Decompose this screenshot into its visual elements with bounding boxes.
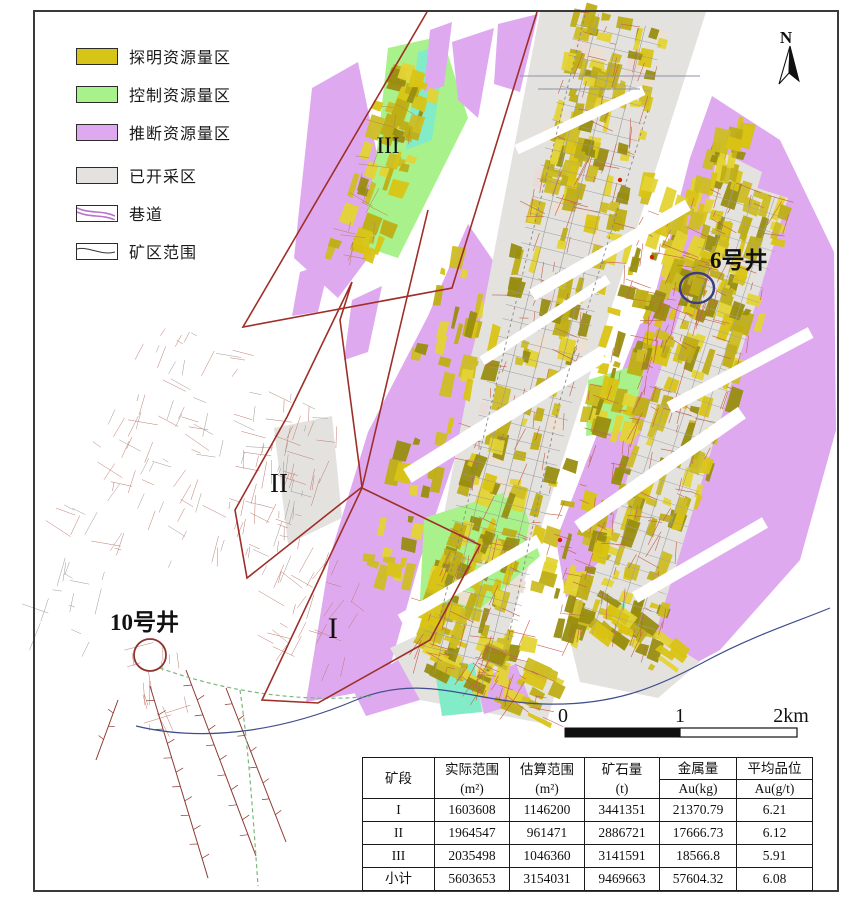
north-arrow-label: N	[780, 28, 793, 47]
cell-metal-amount: 17666.73	[660, 822, 737, 845]
header-line2: (m²)	[435, 780, 509, 798]
legend-label-boundary: 矿区范围	[129, 239, 197, 263]
cell-estimated-area: 1046360	[510, 845, 585, 868]
table-row: III 2035498 1046360 3141591 18566.8 5.91	[363, 845, 813, 868]
table-row-subtotal: 小计 5603653 3154031 9469663 57604.32 6.08	[363, 868, 813, 891]
col-header-ore-amount: 矿石量 (t)	[585, 758, 660, 799]
scale-bar: 0 1 2km	[558, 705, 809, 737]
north-arrow: N	[779, 28, 799, 84]
col-header-segment: 矿段	[363, 758, 435, 799]
cell-ore-amount: 3441351	[585, 799, 660, 822]
zone-label-i: I	[328, 612, 338, 645]
well-6-label: 6号井	[710, 248, 768, 273]
cell-actual-area: 2035498	[435, 845, 510, 868]
inferred-area-swatch	[76, 124, 118, 141]
header-line1: 平均品位	[737, 758, 812, 779]
scale-tick-1: 1	[675, 705, 685, 727]
legend-item-boundary: 矿区范围	[76, 242, 231, 260]
legend-label-mined: 已开采区	[129, 163, 197, 187]
cell-metal-amount: 18566.8	[660, 845, 737, 868]
legend-item-tunnel: 巷道	[76, 204, 231, 222]
header-line1: 金属量	[660, 758, 736, 779]
cell-actual-area: 1603608	[435, 799, 510, 822]
header-line1: 矿石量	[585, 759, 659, 780]
zone-label-ii: II	[270, 468, 288, 498]
header-line2: Au(kg)	[660, 779, 736, 798]
controlled-area-swatch	[76, 86, 118, 103]
resource-table-wrap: 矿段 实际范围 (m²) 估算范围 (m²) 矿石量 (t) 金属量 Au(kg…	[362, 757, 813, 891]
col-header-metal-amount: 金属量 Au(kg)	[660, 758, 737, 799]
table-header-row: 矿段 实际范围 (m²) 估算范围 (m²) 矿石量 (t) 金属量 Au(kg…	[363, 758, 813, 799]
ventilation-tunnel-line	[240, 690, 258, 886]
cell-metal-amount: 57604.32	[660, 868, 737, 891]
header-line2: (m²)	[510, 780, 584, 798]
mined-area-swatch	[76, 167, 118, 184]
legend-label-controlled: 控制资源量区	[129, 82, 231, 106]
tunnel-lines-icon	[77, 206, 115, 220]
header-line1: 估算范围	[510, 759, 584, 780]
resource-table: 矿段 实际范围 (m²) 估算范围 (m²) 矿石量 (t) 金属量 Au(kg…	[362, 757, 813, 891]
col-header-estimated-area: 估算范围 (m²)	[510, 758, 585, 799]
cell-actual-area: 5603653	[435, 868, 510, 891]
cell-average-grade: 6.21	[737, 799, 813, 822]
tunnel-swatch	[76, 205, 118, 222]
cell-estimated-area: 1146200	[510, 799, 585, 822]
cell-estimated-area: 3154031	[510, 868, 585, 891]
legend: 探明资源量区 控制资源量区 推断资源量区 已开采区 巷道 矿区范围	[76, 47, 231, 280]
legend-item-inferred: 推断资源量区	[76, 123, 231, 141]
cell-ore-amount: 2886721	[585, 822, 660, 845]
boundary-curve-icon	[77, 244, 115, 258]
scale-tick-2km: 2km	[773, 705, 809, 727]
legend-label-inferred: 推断资源量区	[129, 120, 231, 144]
well-10-circle	[134, 639, 166, 671]
header-line1: 实际范围	[435, 759, 509, 780]
legend-item-mined: 已开采区	[76, 166, 231, 184]
legend-label-proved: 探明资源量区	[129, 44, 231, 68]
col-header-average-grade: 平均品位 Au(g/t)	[737, 758, 813, 799]
cell-average-grade: 5.91	[737, 845, 813, 868]
header-line2: (t)	[585, 780, 659, 798]
proved-area-swatch	[76, 48, 118, 65]
zone-label-iii: III	[377, 133, 400, 158]
scale-tick-0: 0	[558, 705, 568, 727]
legend-item-proved: 探明资源量区	[76, 47, 231, 65]
cell-segment: II	[363, 822, 435, 845]
boundary-swatch	[76, 243, 118, 260]
header-line1: 矿段	[363, 758, 434, 798]
cell-segment: I	[363, 799, 435, 822]
cell-average-grade: 6.12	[737, 822, 813, 845]
cell-segment: 小计	[363, 868, 435, 891]
well-10-label: 10号井	[110, 610, 179, 635]
cell-ore-amount: 9469663	[585, 868, 660, 891]
cell-metal-amount: 21370.79	[660, 799, 737, 822]
table-row: I 1603608 1146200 3441351 21370.79 6.21	[363, 799, 813, 822]
cell-ore-amount: 3141591	[585, 845, 660, 868]
col-header-actual-area: 实际范围 (m²)	[435, 758, 510, 799]
tunnel-network-layer	[22, 329, 364, 879]
map-sheet: III II I 6号井 10号井 N 0 1 2km 探明资源量区 控制资源量…	[0, 0, 864, 899]
cell-average-grade: 6.08	[737, 868, 813, 891]
cell-segment: III	[363, 845, 435, 868]
legend-label-tunnel: 巷道	[129, 201, 163, 225]
header-line2: Au(g/t)	[737, 779, 812, 798]
cell-estimated-area: 961471	[510, 822, 585, 845]
table-row: II 1964547 961471 2886721 17666.73 6.12	[363, 822, 813, 845]
cell-actual-area: 1964547	[435, 822, 510, 845]
legend-item-controlled: 控制资源量区	[76, 85, 231, 103]
